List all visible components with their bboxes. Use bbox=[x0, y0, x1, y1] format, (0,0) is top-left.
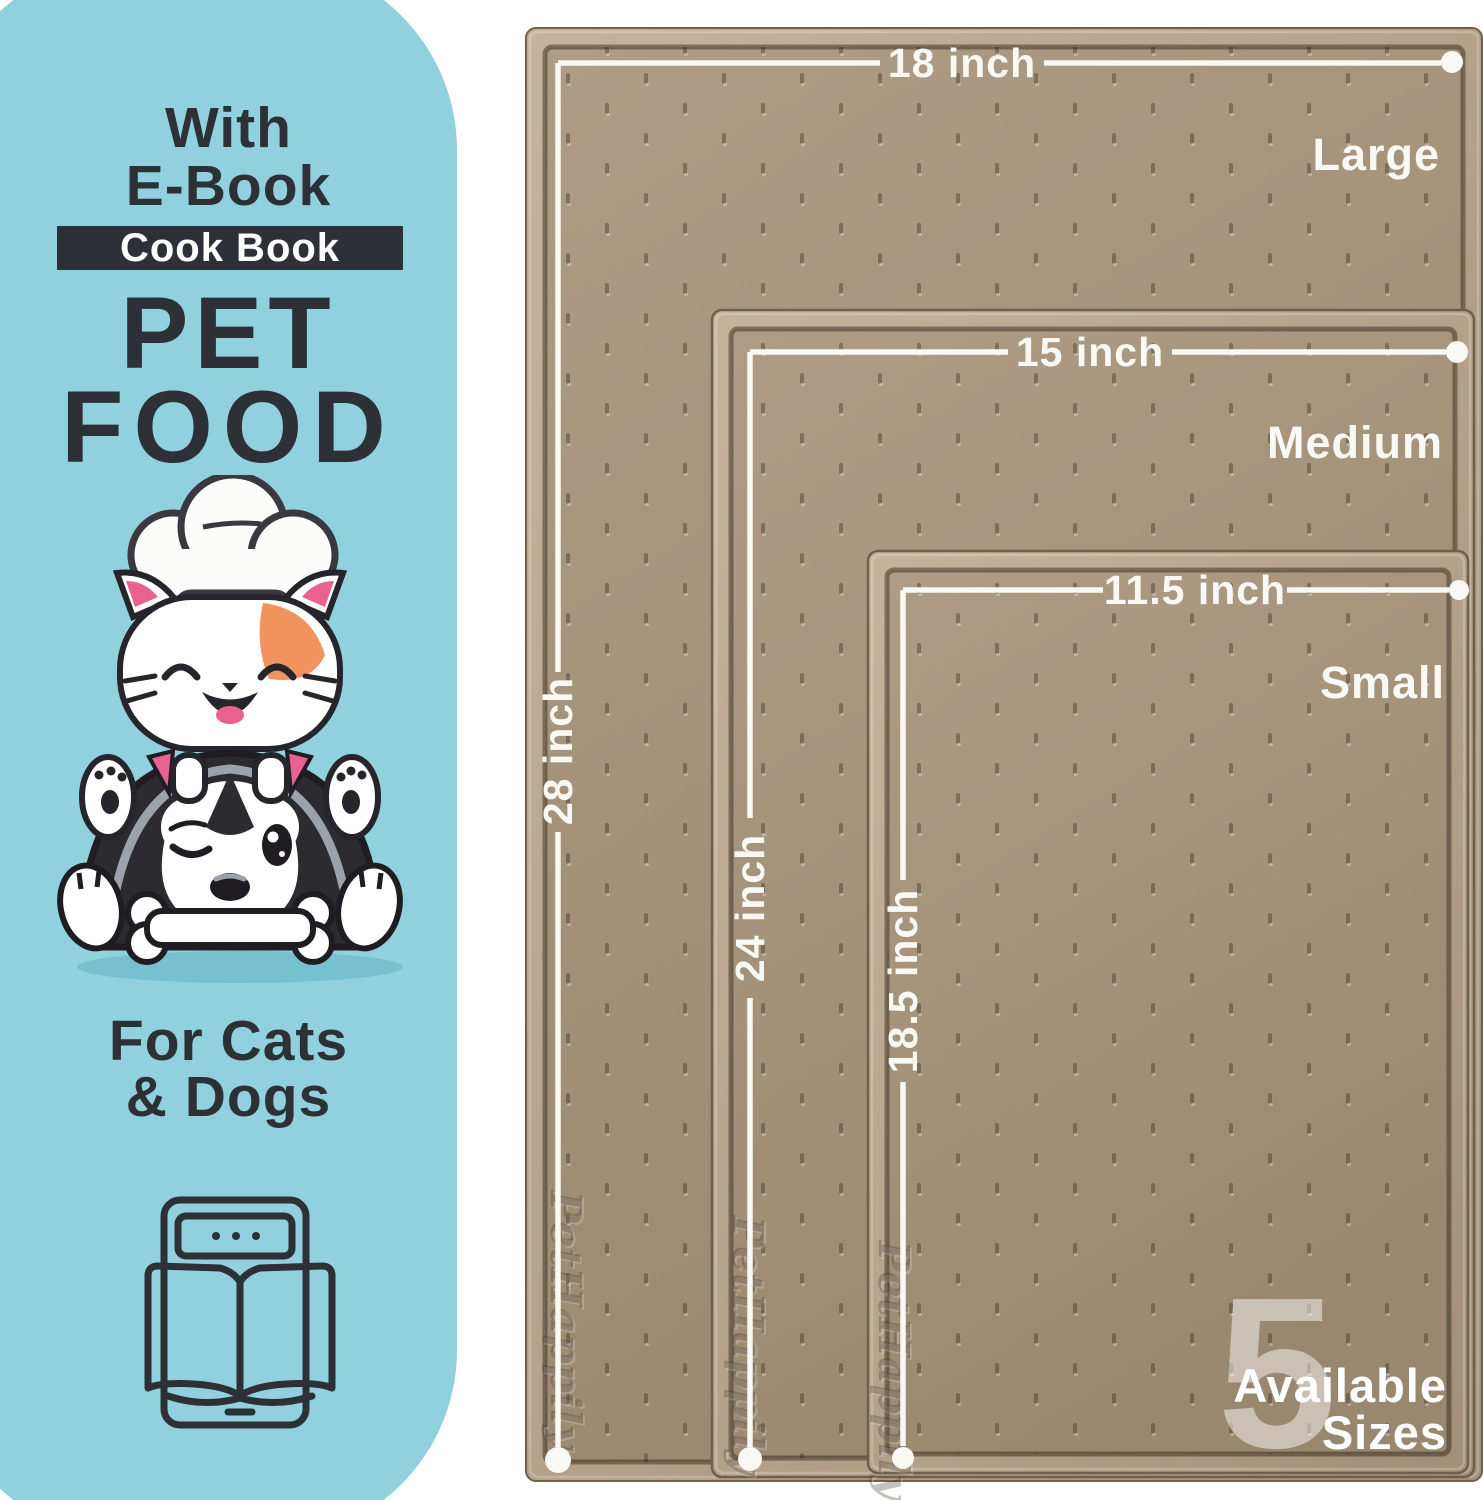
cookbook-badge: Cook Book bbox=[57, 226, 403, 270]
small-width-label: 11.5 inch bbox=[1104, 567, 1286, 613]
small-height-label: 18.5 inch bbox=[880, 889, 926, 1073]
sizes-line1: Available bbox=[1233, 1359, 1447, 1412]
ebook-title-line1: With bbox=[0, 95, 457, 161]
medium-width-label: 15 inch bbox=[1016, 329, 1164, 375]
medium-name-label: Medium bbox=[1267, 417, 1443, 468]
footer-and-dogs: & Dogs bbox=[0, 1064, 457, 1130]
ebook-icon bbox=[138, 1190, 342, 1435]
medium-height-label: 24 inch bbox=[727, 834, 773, 982]
cat-dog-chef-illustration bbox=[55, 475, 425, 985]
large-width-label: 18 inch bbox=[888, 40, 1036, 86]
heading-pet: PET bbox=[0, 282, 457, 384]
large-name-label: Large bbox=[1312, 129, 1440, 180]
cat-face bbox=[117, 573, 343, 749]
ebook-title-line2: E-Book bbox=[0, 153, 457, 219]
heading-food: FOOD bbox=[0, 376, 457, 478]
mats-diagram: PetHappily PetHappily PetHappily PetHapp… bbox=[520, 0, 1483, 1500]
large-height-label: 28 inch bbox=[535, 677, 581, 825]
info-panel-content: With E-Book Cook Book PET FOOD For Cats … bbox=[0, 0, 457, 1500]
product-image: With E-Book Cook Book PET FOOD For Cats … bbox=[0, 0, 1483, 1500]
svg-text:PetHappily: PetHappily bbox=[541, 1190, 590, 1452]
sizes-line2: Sizes bbox=[1322, 1406, 1447, 1459]
small-name-label: Small bbox=[1320, 657, 1445, 708]
ground-shadow bbox=[77, 951, 403, 983]
brand-watermark-large: PetHappily PetHappily bbox=[541, 1190, 592, 1454]
